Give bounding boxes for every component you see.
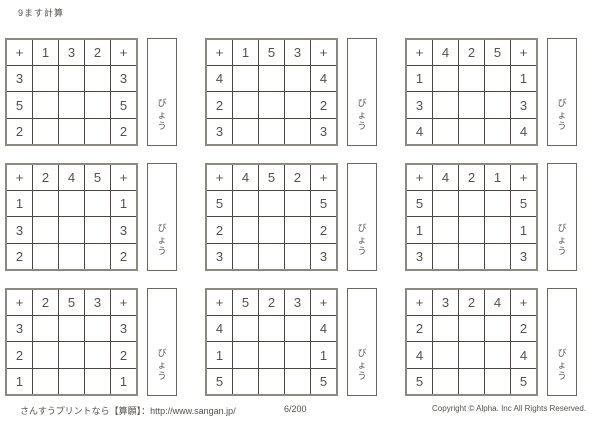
- top-addend: 2: [459, 289, 485, 316]
- right-addend: 5: [311, 191, 338, 217]
- answer-cell[interactable]: [433, 92, 459, 118]
- operator-cell: +: [111, 39, 138, 66]
- top-addend: 3: [85, 289, 111, 316]
- top-addend: 3: [285, 39, 311, 66]
- answer-cell[interactable]: [485, 118, 511, 145]
- operator-cell: +: [311, 39, 338, 66]
- right-addend: 3: [111, 217, 138, 243]
- top-addend: 2: [33, 289, 59, 316]
- left-addend: 4: [206, 66, 233, 92]
- puzzle-unit: + 1 5 3 + 4 4 2 2: [205, 38, 383, 146]
- calc-grid: + 4 2 1 + 5 5 1 1: [405, 163, 538, 271]
- left-addend: 2: [6, 243, 33, 270]
- answer-cell[interactable]: [285, 368, 311, 395]
- answer-cell[interactable]: [233, 92, 259, 118]
- answer-cell[interactable]: [459, 191, 485, 217]
- operator-cell: +: [206, 39, 233, 66]
- left-addend: 3: [6, 66, 33, 92]
- calc-grid: + 4 5 2 + 5 5 2 2: [205, 163, 338, 271]
- footer-source-link: さんすうプリントなら【算願】：http://www.sangan.jp/: [20, 404, 236, 417]
- answer-cell[interactable]: [85, 316, 111, 342]
- answer-cell[interactable]: [433, 316, 459, 342]
- footer-page-number: 6/200: [284, 404, 307, 414]
- answer-cell[interactable]: [233, 66, 259, 92]
- left-addend: 3: [206, 243, 233, 270]
- page-title: 9ます計算: [18, 6, 64, 19]
- answer-cell[interactable]: [233, 118, 259, 145]
- right-addend: 3: [311, 243, 338, 270]
- answer-cell[interactable]: [233, 243, 259, 270]
- top-addend: 4: [433, 39, 459, 66]
- top-addend: 2: [285, 164, 311, 191]
- right-addend: 3: [111, 316, 138, 342]
- answer-cell[interactable]: [459, 217, 485, 243]
- top-addend: 1: [233, 39, 259, 66]
- right-addend: 4: [311, 66, 338, 92]
- top-addend: 3: [433, 289, 459, 316]
- left-addend: 3: [406, 243, 433, 270]
- puzzle-unit: + 4 2 5 + 1 1 3 3: [405, 38, 583, 146]
- top-addend: 2: [459, 164, 485, 191]
- answer-cell[interactable]: [233, 191, 259, 217]
- seconds-box[interactable]: びょう: [347, 38, 377, 146]
- right-addend: 2: [311, 217, 338, 243]
- answer-cell[interactable]: [259, 66, 285, 92]
- answer-cell[interactable]: [33, 316, 59, 342]
- answer-cell[interactable]: [233, 368, 259, 395]
- answer-cell[interactable]: [33, 342, 59, 368]
- seconds-box[interactable]: びょう: [147, 288, 177, 396]
- answer-cell[interactable]: [233, 217, 259, 243]
- answer-cell[interactable]: [59, 118, 85, 145]
- operator-cell: +: [206, 289, 233, 316]
- seconds-box[interactable]: びょう: [147, 163, 177, 271]
- seconds-box[interactable]: びょう: [547, 288, 577, 396]
- operator-cell: +: [6, 289, 33, 316]
- right-addend: 4: [311, 316, 338, 342]
- answer-cell[interactable]: [485, 191, 511, 217]
- answer-cell[interactable]: [285, 217, 311, 243]
- answer-cell[interactable]: [59, 92, 85, 118]
- seconds-label: びょう: [358, 348, 367, 382]
- answer-cell[interactable]: [285, 316, 311, 342]
- left-addend: 5: [406, 191, 433, 217]
- operator-cell: +: [406, 164, 433, 191]
- left-addend: 2: [6, 342, 33, 368]
- right-addend: 5: [511, 368, 538, 395]
- top-addend: 4: [433, 164, 459, 191]
- answer-cell[interactable]: [433, 66, 459, 92]
- top-addend: 5: [85, 164, 111, 191]
- seconds-label: びょう: [158, 223, 167, 257]
- answer-cell[interactable]: [85, 217, 111, 243]
- answer-cell[interactable]: [33, 243, 59, 270]
- right-addend: 1: [111, 368, 138, 395]
- right-addend: 2: [111, 342, 138, 368]
- top-addend: 2: [33, 164, 59, 191]
- right-addend: 1: [511, 217, 538, 243]
- top-addend: 5: [259, 164, 285, 191]
- page-footer: さんすうプリントなら【算願】：http://www.sangan.jp/ 6/2…: [0, 404, 600, 418]
- answer-cell[interactable]: [259, 368, 285, 395]
- operator-cell: +: [406, 39, 433, 66]
- answer-cell[interactable]: [85, 342, 111, 368]
- left-addend: 4: [406, 118, 433, 145]
- left-addend: 1: [6, 368, 33, 395]
- answer-cell[interactable]: [433, 191, 459, 217]
- answer-cell[interactable]: [485, 92, 511, 118]
- right-addend: 1: [511, 66, 538, 92]
- seconds-box[interactable]: びょう: [347, 288, 377, 396]
- right-addend: 2: [311, 92, 338, 118]
- seconds-label: びょう: [158, 348, 167, 382]
- seconds-box[interactable]: びょう: [347, 163, 377, 271]
- answer-cell[interactable]: [59, 217, 85, 243]
- operator-cell: +: [111, 164, 138, 191]
- top-addend: 2: [85, 39, 111, 66]
- right-addend: 4: [511, 342, 538, 368]
- answer-cell[interactable]: [85, 368, 111, 395]
- right-addend: 5: [111, 92, 138, 118]
- answer-cell[interactable]: [285, 342, 311, 368]
- answer-cell[interactable]: [285, 191, 311, 217]
- right-addend: 3: [311, 118, 338, 145]
- calc-grid: + 4 2 5 + 1 1 3 3: [405, 38, 538, 146]
- operator-cell: +: [406, 289, 433, 316]
- answer-cell[interactable]: [59, 66, 85, 92]
- right-addend: 5: [311, 368, 338, 395]
- left-addend: 3: [6, 217, 33, 243]
- answer-cell[interactable]: [85, 92, 111, 118]
- left-addend: 3: [206, 118, 233, 145]
- left-addend: 2: [206, 92, 233, 118]
- top-addend: 1: [485, 164, 511, 191]
- operator-cell: +: [6, 39, 33, 66]
- seconds-box[interactable]: びょう: [147, 38, 177, 146]
- right-addend: 3: [511, 243, 538, 270]
- calc-grid: + 2 4 5 + 1 1 3 3: [5, 163, 138, 271]
- answer-cell[interactable]: [285, 66, 311, 92]
- top-addend: 3: [285, 289, 311, 316]
- answer-cell[interactable]: [433, 342, 459, 368]
- left-addend: 4: [206, 316, 233, 342]
- puzzle-unit: + 5 2 3 + 4 4 1 1: [205, 288, 383, 396]
- top-addend: 1: [33, 39, 59, 66]
- answer-cell[interactable]: [459, 118, 485, 145]
- right-addend: 5: [511, 191, 538, 217]
- left-addend: 2: [6, 118, 33, 145]
- answer-cell[interactable]: [285, 243, 311, 270]
- right-addend: 1: [311, 342, 338, 368]
- left-addend: 1: [406, 217, 433, 243]
- answer-cell[interactable]: [485, 316, 511, 342]
- answer-cell[interactable]: [259, 217, 285, 243]
- right-addend: 2: [111, 243, 138, 270]
- puzzle-unit: + 4 5 2 + 5 5 2 2: [205, 163, 383, 271]
- operator-cell: +: [311, 289, 338, 316]
- top-addend: 4: [485, 289, 511, 316]
- answer-cell[interactable]: [459, 92, 485, 118]
- answer-cell[interactable]: [33, 92, 59, 118]
- answer-cell[interactable]: [33, 191, 59, 217]
- puzzle-unit: + 4 2 1 + 5 5 1 1: [405, 163, 583, 271]
- top-addend: 2: [459, 39, 485, 66]
- answer-cell[interactable]: [59, 316, 85, 342]
- puzzle-unit: + 2 4 5 + 1 1 3 3: [5, 163, 183, 271]
- operator-cell: +: [511, 164, 538, 191]
- answer-cell[interactable]: [259, 191, 285, 217]
- right-addend: 3: [511, 92, 538, 118]
- puzzle-unit: + 3 2 4 + 2 2 4 4: [405, 288, 583, 396]
- answer-cell[interactable]: [433, 118, 459, 145]
- right-addend: 3: [111, 66, 138, 92]
- seconds-label: びょう: [158, 98, 167, 132]
- footer-copyright: Copyright © Alpha. Inc All Rights Reserv…: [432, 404, 586, 413]
- seconds-box[interactable]: びょう: [547, 163, 577, 271]
- seconds-label: びょう: [558, 98, 567, 132]
- operator-cell: +: [111, 289, 138, 316]
- puzzle-sheet: + 1 3 2 + 3 3 5 5: [5, 38, 583, 396]
- answer-cell[interactable]: [259, 316, 285, 342]
- top-addend: 3: [59, 39, 85, 66]
- top-addend: 5: [59, 289, 85, 316]
- operator-cell: +: [206, 164, 233, 191]
- answer-cell[interactable]: [59, 368, 85, 395]
- answer-cell[interactable]: [485, 342, 511, 368]
- top-addend: 2: [259, 289, 285, 316]
- answer-cell[interactable]: [459, 368, 485, 395]
- answer-cell[interactable]: [433, 243, 459, 270]
- left-addend: 3: [406, 92, 433, 118]
- answer-cell[interactable]: [33, 118, 59, 145]
- answer-cell[interactable]: [485, 368, 511, 395]
- answer-cell[interactable]: [433, 368, 459, 395]
- left-addend: 5: [206, 191, 233, 217]
- answer-cell[interactable]: [59, 342, 85, 368]
- operator-cell: +: [511, 39, 538, 66]
- left-addend: 2: [206, 217, 233, 243]
- answer-cell[interactable]: [285, 92, 311, 118]
- answer-cell[interactable]: [433, 217, 459, 243]
- answer-cell[interactable]: [285, 118, 311, 145]
- answer-cell[interactable]: [485, 243, 511, 270]
- right-addend: 4: [511, 118, 538, 145]
- left-addend: 1: [6, 191, 33, 217]
- answer-cell[interactable]: [33, 66, 59, 92]
- top-addend: 5: [259, 39, 285, 66]
- answer-cell[interactable]: [459, 316, 485, 342]
- left-addend: 3: [6, 316, 33, 342]
- answer-cell[interactable]: [85, 191, 111, 217]
- right-addend: 2: [511, 316, 538, 342]
- left-addend: 5: [206, 368, 233, 395]
- seconds-label: びょう: [358, 223, 367, 257]
- seconds-label: びょう: [558, 348, 567, 382]
- answer-cell[interactable]: [259, 243, 285, 270]
- answer-cell[interactable]: [259, 342, 285, 368]
- left-addend: 2: [406, 316, 433, 342]
- answer-cell[interactable]: [233, 316, 259, 342]
- operator-cell: +: [6, 164, 33, 191]
- right-addend: 2: [111, 118, 138, 145]
- puzzle-unit: + 2 5 3 + 3 3 2 2: [5, 288, 183, 396]
- puzzle-unit: + 1 3 2 + 3 3 5 5: [5, 38, 183, 146]
- answer-cell[interactable]: [85, 243, 111, 270]
- answer-cell[interactable]: [59, 191, 85, 217]
- answer-cell[interactable]: [85, 118, 111, 145]
- top-addend: 5: [485, 39, 511, 66]
- left-addend: 1: [206, 342, 233, 368]
- left-addend: 4: [406, 342, 433, 368]
- answer-cell[interactable]: [459, 243, 485, 270]
- calc-grid: + 2 5 3 + 3 3 2 2: [5, 288, 138, 396]
- calc-grid: + 1 5 3 + 4 4 2 2: [205, 38, 338, 146]
- right-addend: 1: [111, 191, 138, 217]
- calc-grid: + 1 3 2 + 3 3 5 5: [5, 38, 138, 146]
- calc-grid: + 3 2 4 + 2 2 4 4: [405, 288, 538, 396]
- seconds-label: びょう: [558, 223, 567, 257]
- answer-cell[interactable]: [85, 66, 111, 92]
- calc-grid: + 5 2 3 + 4 4 1 1: [205, 288, 338, 396]
- left-addend: 5: [6, 92, 33, 118]
- answer-cell[interactable]: [33, 217, 59, 243]
- left-addend: 1: [406, 66, 433, 92]
- answer-cell[interactable]: [485, 217, 511, 243]
- answer-cell[interactable]: [233, 342, 259, 368]
- operator-cell: +: [511, 289, 538, 316]
- answer-cell[interactable]: [259, 118, 285, 145]
- operator-cell: +: [311, 164, 338, 191]
- seconds-box[interactable]: びょう: [547, 38, 577, 146]
- answer-cell[interactable]: [459, 342, 485, 368]
- answer-cell[interactable]: [459, 66, 485, 92]
- answer-cell[interactable]: [259, 92, 285, 118]
- answer-cell[interactable]: [485, 66, 511, 92]
- seconds-label: びょう: [358, 98, 367, 132]
- top-addend: 4: [59, 164, 85, 191]
- left-addend: 5: [406, 368, 433, 395]
- top-addend: 5: [233, 289, 259, 316]
- top-addend: 4: [233, 164, 259, 191]
- answer-cell[interactable]: [59, 243, 85, 270]
- answer-cell[interactable]: [33, 368, 59, 395]
